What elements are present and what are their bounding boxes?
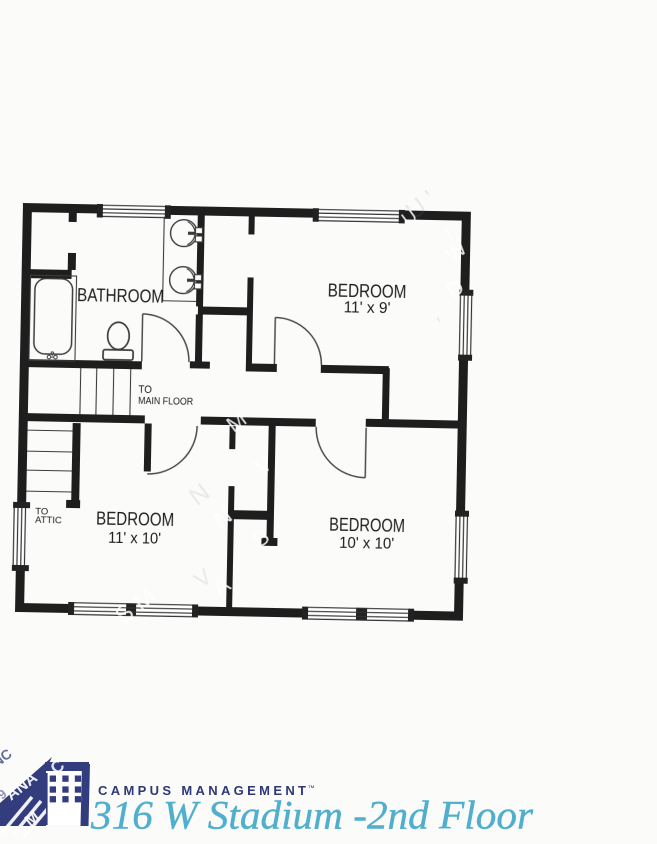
- svg-text:BATHROOM: BATHROOM: [77, 284, 164, 307]
- svg-text:BEDROOM: BEDROOM: [328, 280, 407, 303]
- svg-text:ATTIC: ATTIC: [35, 515, 62, 527]
- svg-text:N: N: [184, 478, 215, 511]
- svg-text:S M: S M: [110, 583, 160, 630]
- svg-text:11' x 9': 11' x 9': [343, 299, 390, 317]
- svg-text:BEDROOM: BEDROOM: [329, 513, 405, 535]
- svg-text:NC: NC: [0, 745, 15, 770]
- svg-text:™: ™: [308, 785, 315, 792]
- svg-text:M: M: [222, 406, 252, 437]
- svg-text:TO: TO: [138, 384, 152, 396]
- svg-text:': ': [433, 313, 451, 336]
- svg-text:10' x 10': 10' x 10': [339, 535, 394, 553]
- svg-text:BEDROOM: BEDROOM: [96, 507, 174, 530]
- svg-text:MAIN FLOOR: MAIN FLOOR: [138, 396, 194, 408]
- svg-text:316 W Stadium -2nd Floor: 316 W Stadium -2nd Floor: [90, 793, 533, 838]
- svg-text:11' x 10': 11' x 10': [108, 530, 161, 548]
